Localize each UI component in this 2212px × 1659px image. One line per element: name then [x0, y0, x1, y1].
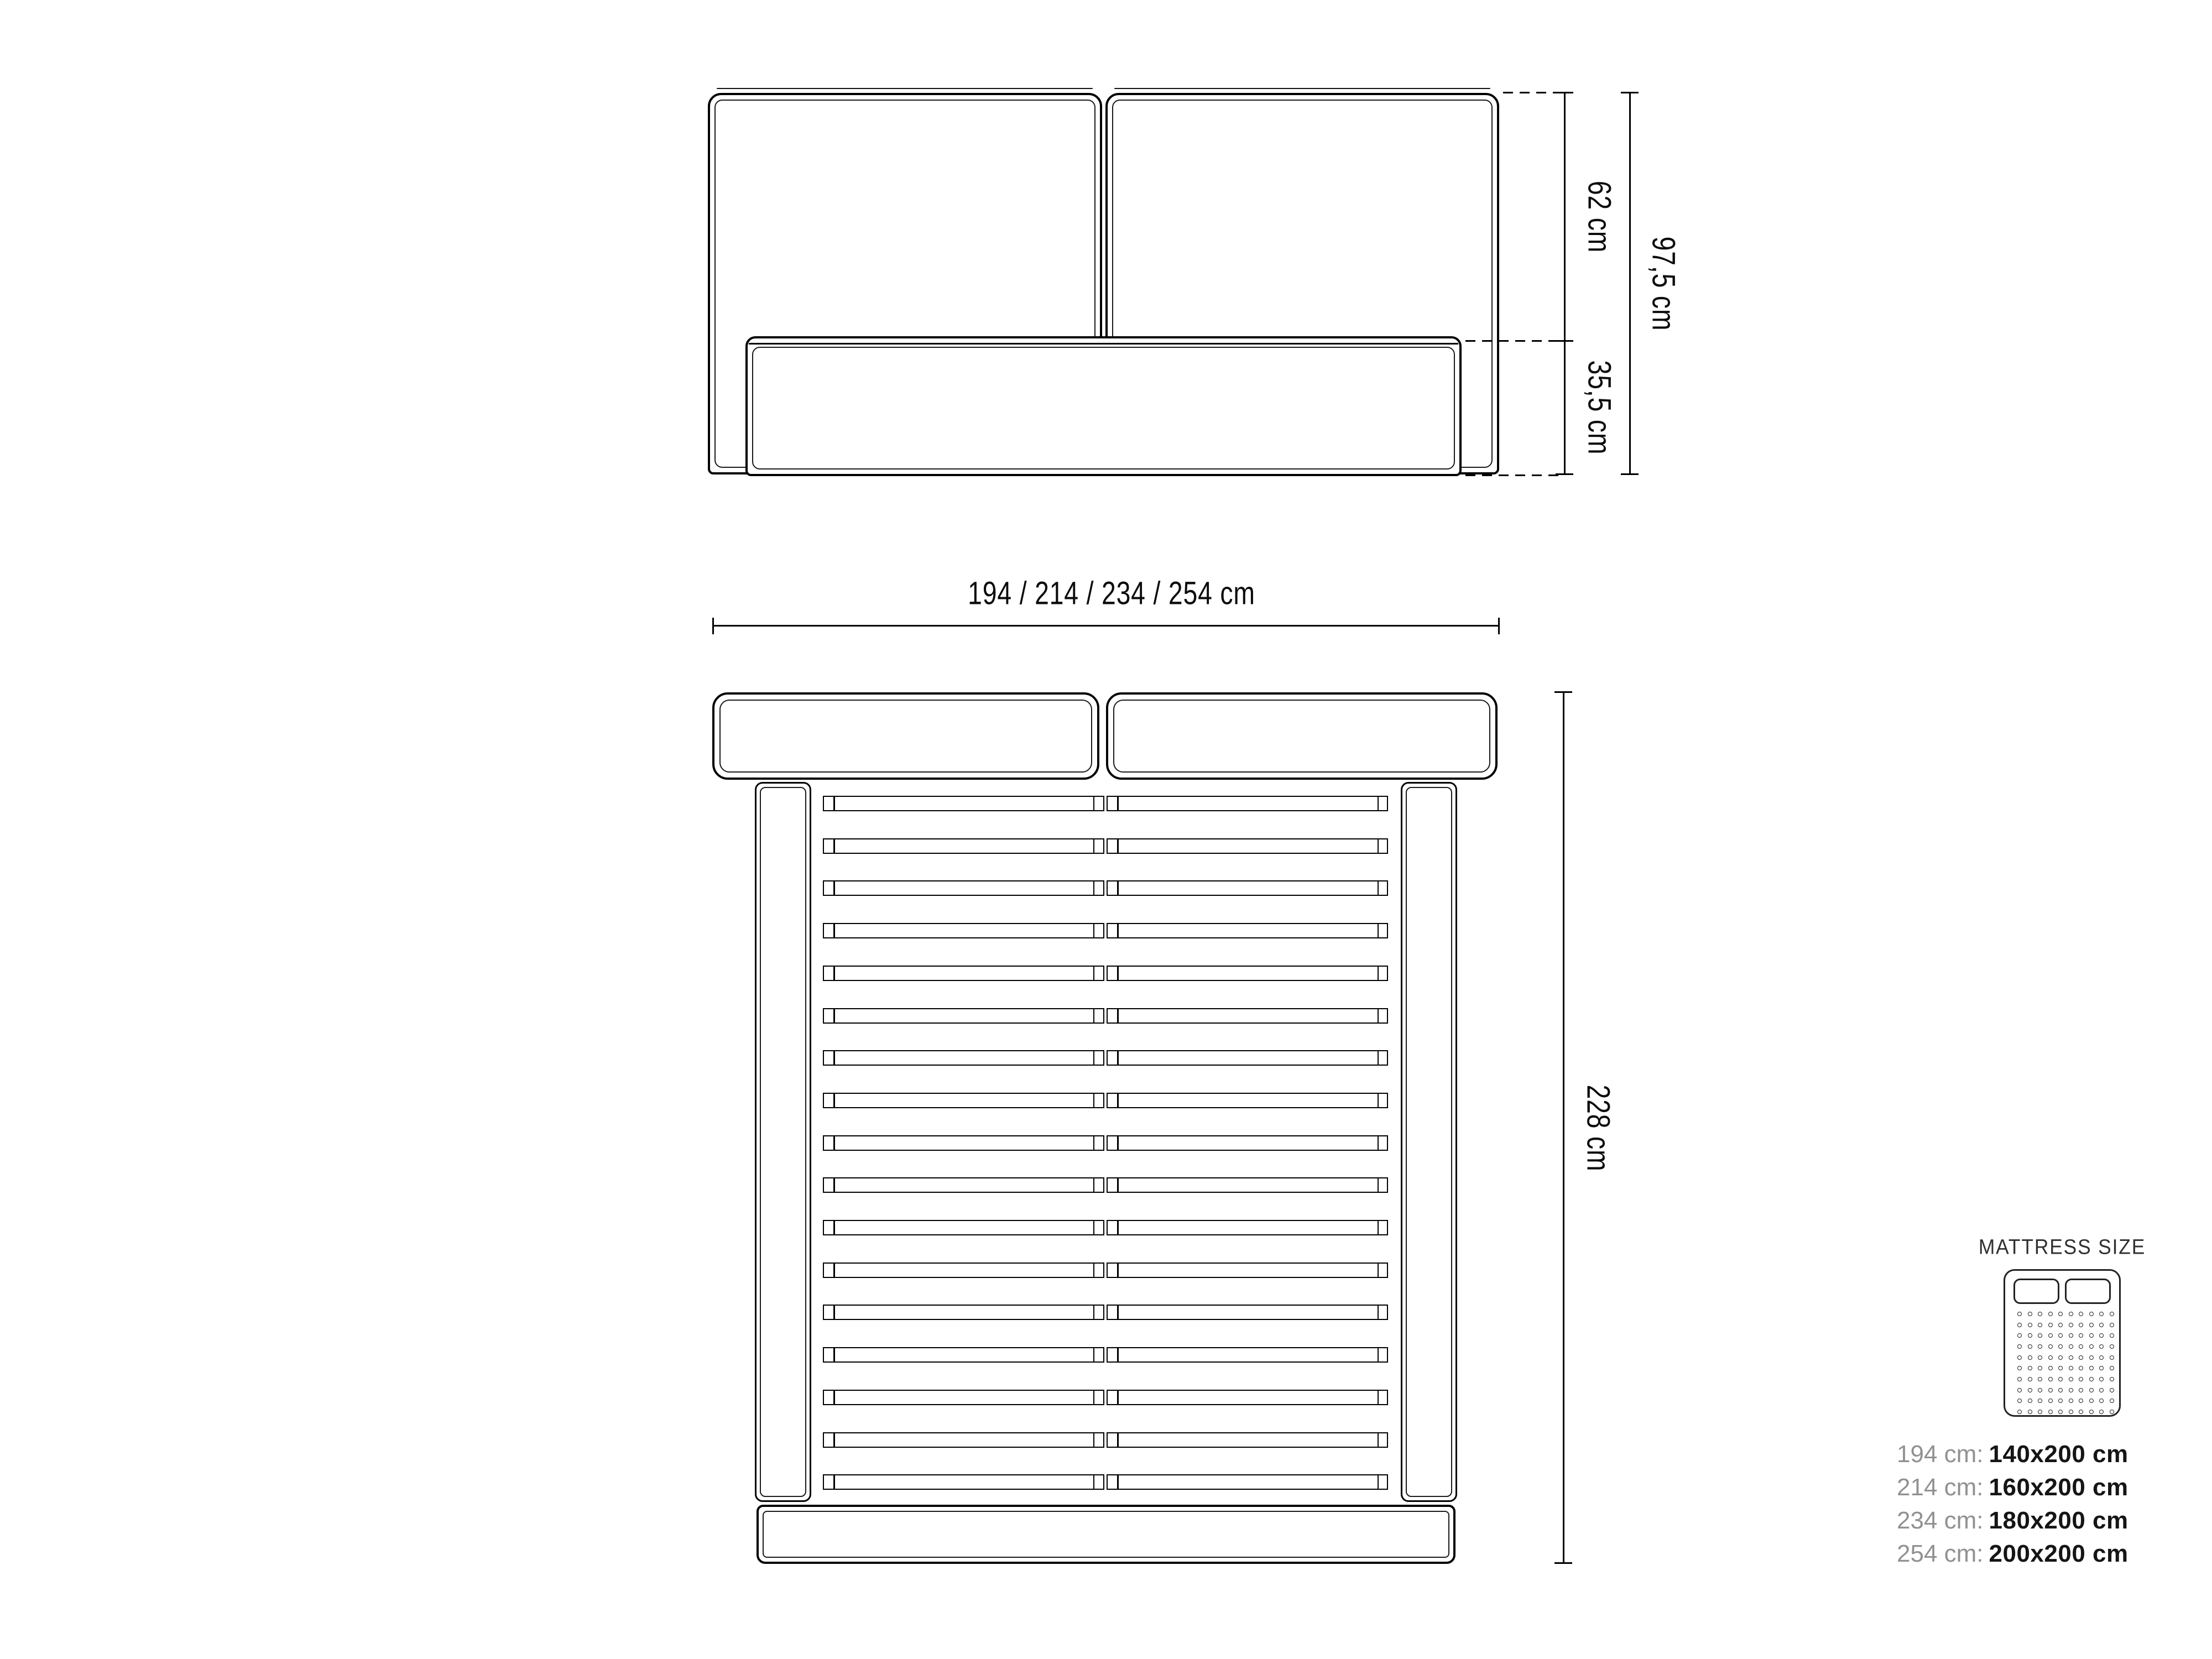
bed-base-inner-outline — [752, 347, 1455, 469]
slat-row-7-right — [1107, 1050, 1388, 1066]
dimension-tick — [1556, 340, 1573, 342]
slat-row-14-left — [823, 1347, 1104, 1363]
mattress-dot — [2028, 1377, 2032, 1381]
mattress-dot — [2048, 1312, 2053, 1316]
mattress-size-list: 194 cm:140x200 cm214 cm:160x200 cm234 cm… — [1897, 1438, 2121, 1571]
mattress-dot — [2017, 1323, 2022, 1327]
mattress-icon-dot-grid — [2015, 1308, 2117, 1417]
mattress-dot — [2069, 1377, 2073, 1381]
mattress-dot — [2017, 1366, 2022, 1370]
mattress-size-value: 180x200 cm — [1989, 1507, 2128, 1534]
mattress-dot — [2048, 1366, 2053, 1370]
mattress-dot — [2110, 1399, 2114, 1403]
slat-row-9-left — [823, 1135, 1104, 1151]
slat-row-10-left — [823, 1177, 1104, 1193]
mattress-dot — [2048, 1355, 2053, 1360]
mattress-size-row: 234 cm:180x200 cm — [1897, 1504, 2121, 1537]
slat-row-4-left — [823, 923, 1104, 938]
mattress-dot — [2110, 1366, 2114, 1370]
mattress-dot — [2089, 1388, 2094, 1392]
mattress-dot — [2017, 1312, 2022, 1316]
slat-row-3-right — [1107, 880, 1388, 896]
frame-width-label: 254 cm: — [1897, 1540, 1984, 1567]
slat-row-10-right — [1107, 1177, 1388, 1193]
slat-row-3-left — [823, 880, 1104, 896]
mattress-dot — [2110, 1410, 2114, 1414]
mattress-dot — [2079, 1312, 2083, 1316]
mattress-dot — [2038, 1323, 2042, 1327]
mattress-size-row: 214 cm:160x200 cm — [1897, 1471, 2121, 1504]
mattress-dot — [2079, 1410, 2083, 1414]
mattress-dot — [2069, 1388, 2073, 1392]
mattress-dot — [2110, 1377, 2114, 1381]
mattress-dot — [2017, 1333, 2022, 1338]
mattress-dot — [2110, 1312, 2114, 1316]
mattress-size-value: 200x200 cm — [1989, 1540, 2128, 1567]
mattress-dot — [2017, 1399, 2022, 1403]
mattress-dot — [2028, 1388, 2032, 1392]
slat-row-4-right — [1107, 923, 1388, 938]
height-dimension-line-inner — [1564, 93, 1566, 474]
mattress-dot — [2110, 1355, 2114, 1360]
mattress-dot — [2028, 1355, 2032, 1360]
mattress-dot — [2079, 1355, 2083, 1360]
frame-width-label: 214 cm: — [1897, 1474, 1984, 1501]
headboard-left-top-edge-line — [717, 88, 1093, 89]
slat-row-1-left — [823, 796, 1104, 811]
dimension-tick — [1498, 618, 1500, 634]
slat-row-12-left — [823, 1262, 1104, 1278]
mattress-dot — [2048, 1388, 2053, 1392]
mattress-dot — [2038, 1388, 2042, 1392]
depth-label: 228 cm — [1580, 1085, 1617, 1172]
mattress-dot — [2089, 1344, 2094, 1349]
slat-row-17-right — [1107, 1474, 1388, 1490]
mattress-dot — [2048, 1344, 2053, 1349]
mattress-dot — [2089, 1323, 2094, 1327]
mattress-dot — [2038, 1312, 2042, 1316]
mattress-dot — [2017, 1355, 2022, 1360]
mattress-dot — [2069, 1333, 2073, 1338]
slat-row-12-right — [1107, 1262, 1388, 1278]
mattress-dot — [2017, 1410, 2022, 1414]
slat-row-13-right — [1107, 1305, 1388, 1320]
mattress-dot — [2028, 1312, 2032, 1316]
dimension-tick — [1621, 92, 1639, 93]
mattress-dot — [2079, 1399, 2083, 1403]
mattress-dot — [2089, 1333, 2094, 1338]
mattress-dot — [2099, 1366, 2104, 1370]
mattress-dot — [2099, 1323, 2104, 1327]
mattress-dot — [2079, 1366, 2083, 1370]
dimension-tick — [1621, 473, 1639, 475]
mattress-dot — [2058, 1355, 2063, 1360]
mattress-dot — [2110, 1333, 2114, 1338]
mattress-dot — [2017, 1377, 2022, 1381]
mattress-dot — [2069, 1399, 2073, 1403]
mattress-dot — [2058, 1366, 2063, 1370]
headboard-cushion-left-top-view — [712, 692, 1099, 780]
mattress-dot — [2058, 1344, 2063, 1349]
mattress-dot — [2058, 1333, 2063, 1338]
dimension-tick — [1556, 473, 1573, 475]
slat-row-11-right — [1107, 1220, 1388, 1235]
mattress-size-row: 254 cm:200x200 cm — [1897, 1537, 2121, 1571]
mattress-size-row: 194 cm:140x200 cm — [1897, 1438, 2121, 1471]
mattress-dot — [2038, 1377, 2042, 1381]
mattress-dot — [2028, 1366, 2032, 1370]
width-dimension-line — [712, 625, 1500, 627]
mattress-dot — [2099, 1333, 2104, 1338]
mattress-dot — [2038, 1333, 2042, 1338]
slat-row-16-left — [823, 1432, 1104, 1448]
mattress-dot — [2058, 1410, 2063, 1414]
width-options-label: 194 / 214 / 234 / 254 cm — [968, 575, 1255, 612]
mattress-icon-pillow-left — [2013, 1279, 2059, 1304]
mattress-dot — [2048, 1333, 2053, 1338]
frame-width-label: 194 cm: — [1897, 1441, 1984, 1468]
frame-width-label: 234 cm: — [1897, 1507, 1984, 1534]
bed-base-top-seam-line — [749, 343, 1458, 345]
total-height-label: 97,5 cm — [1645, 237, 1682, 331]
headboard-height-label: 62 cm — [1581, 181, 1618, 253]
height-dimension-line-outer — [1629, 93, 1631, 474]
mattress-dot — [2058, 1323, 2063, 1327]
mattress-dot — [2089, 1355, 2094, 1360]
mattress-dot — [2089, 1399, 2094, 1403]
slat-row-8-right — [1107, 1093, 1388, 1108]
slat-row-17-left — [823, 1474, 1104, 1490]
slat-row-5-right — [1107, 966, 1388, 981]
mattress-dot — [2028, 1323, 2032, 1327]
dimension-tick — [712, 618, 714, 634]
slat-row-2-left — [823, 838, 1104, 854]
side-rail-right-top-view — [1401, 782, 1457, 1502]
mattress-dot — [2069, 1323, 2073, 1327]
mattress-dot — [2099, 1388, 2104, 1392]
mattress-dot — [2069, 1312, 2073, 1316]
slat-row-8-left — [823, 1093, 1104, 1108]
mattress-dot — [2099, 1312, 2104, 1316]
side-rail-right-inner-outline — [1406, 787, 1452, 1497]
mattress-dot — [2058, 1399, 2063, 1403]
mattress-dot — [2089, 1312, 2094, 1316]
mattress-dot — [2079, 1323, 2083, 1327]
mattress-dot — [2038, 1366, 2042, 1370]
mattress-dot — [2017, 1388, 2022, 1392]
side-rail-left-top-view — [755, 782, 811, 1502]
extension-dashed-line-middle — [1465, 340, 1565, 342]
slat-row-14-right — [1107, 1347, 1388, 1363]
mattress-dot — [2069, 1410, 2073, 1414]
mattress-dot — [2110, 1388, 2114, 1392]
mattress-dot — [2028, 1399, 2032, 1403]
cushion-left-inner-outline — [719, 700, 1092, 773]
bed-dimension-diagram: { "page": { "background": "#ffffff", "li… — [0, 0, 2212, 1659]
slat-row-1-right — [1107, 796, 1388, 811]
mattress-dot — [2089, 1366, 2094, 1370]
mattress-dot — [2079, 1333, 2083, 1338]
extension-dashed-line-bottom — [1465, 474, 1565, 476]
slat-row-6-left — [823, 1008, 1104, 1024]
mattress-dot — [2038, 1410, 2042, 1414]
mattress-dot — [2058, 1388, 2063, 1392]
mattress-dot — [2048, 1377, 2053, 1381]
slat-row-11-left — [823, 1220, 1104, 1235]
mattress-dot — [2099, 1355, 2104, 1360]
mattress-size-value: 140x200 cm — [1989, 1441, 2128, 1468]
slat-row-15-left — [823, 1390, 1104, 1405]
footboard-top-view — [757, 1505, 1455, 1564]
mattress-dot — [2028, 1410, 2032, 1414]
mattress-dot — [2110, 1323, 2114, 1327]
slat-row-2-right — [1107, 838, 1388, 854]
base-height-label: 35,5 cm — [1581, 361, 1618, 455]
footboard-inner-outline — [763, 1511, 1449, 1558]
slat-row-15-right — [1107, 1390, 1388, 1405]
headboard-cushion-right-top-view — [1106, 692, 1498, 780]
slat-row-16-right — [1107, 1432, 1388, 1448]
mattress-dot — [2099, 1344, 2104, 1349]
dimension-tick — [1554, 1562, 1572, 1564]
mattress-dot — [2089, 1410, 2094, 1414]
dimension-tick — [1556, 92, 1573, 93]
mattress-dot — [2028, 1344, 2032, 1349]
mattress-dot — [2058, 1377, 2063, 1381]
mattress-dot — [2038, 1344, 2042, 1349]
mattress-icon — [2004, 1269, 2121, 1417]
slat-row-13-left — [823, 1305, 1104, 1320]
mattress-dot — [2028, 1333, 2032, 1338]
mattress-size-title: MATTRESS SIZE — [1979, 1236, 2146, 1260]
bed-base-panel-front — [745, 336, 1462, 476]
dimension-tick — [1554, 691, 1572, 693]
mattress-dot — [2099, 1399, 2104, 1403]
mattress-dot — [2079, 1388, 2083, 1392]
mattress-icon-pillow-right — [2065, 1279, 2111, 1304]
mattress-dot — [2058, 1312, 2063, 1316]
slat-row-6-right — [1107, 1008, 1388, 1024]
mattress-dot — [2089, 1377, 2094, 1381]
headboard-right-top-edge-line — [1114, 88, 1490, 89]
mattress-dot — [2099, 1410, 2104, 1414]
cushion-right-inner-outline — [1113, 700, 1490, 773]
mattress-dot — [2038, 1355, 2042, 1360]
mattress-size-value: 160x200 cm — [1989, 1474, 2128, 1501]
mattress-dot — [2048, 1323, 2053, 1327]
mattress-dot — [2079, 1377, 2083, 1381]
slat-row-9-right — [1107, 1135, 1388, 1151]
mattress-dot — [2099, 1377, 2104, 1381]
mattress-dot — [2038, 1399, 2042, 1403]
depth-dimension-line — [1563, 692, 1564, 1564]
slat-row-5-left — [823, 966, 1104, 981]
mattress-dot — [2048, 1399, 2053, 1403]
side-rail-left-inner-outline — [760, 787, 806, 1497]
mattress-dot — [2069, 1344, 2073, 1349]
mattress-dot — [2069, 1355, 2073, 1360]
slat-row-7-left — [823, 1050, 1104, 1066]
mattress-dot — [2079, 1344, 2083, 1349]
mattress-dot — [2069, 1366, 2073, 1370]
mattress-dot — [2110, 1344, 2114, 1349]
mattress-dot — [2048, 1410, 2053, 1414]
mattress-dot — [2017, 1344, 2022, 1349]
